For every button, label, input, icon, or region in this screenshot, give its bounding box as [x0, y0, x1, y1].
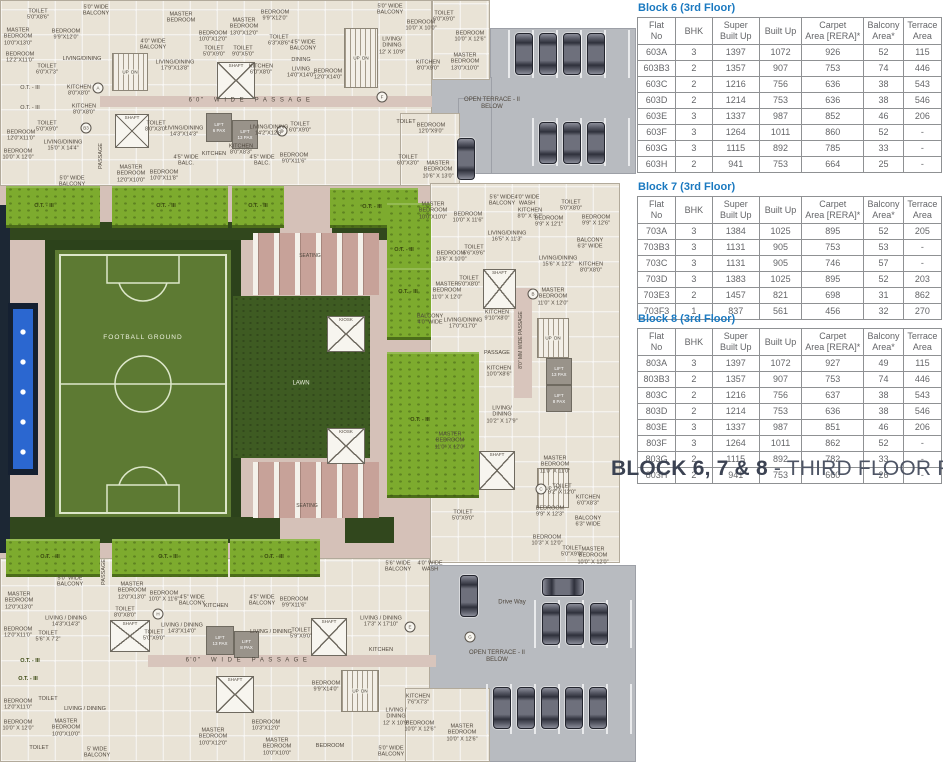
table-cell: 603E [638, 109, 676, 125]
shaft-box: SHAFT [115, 114, 149, 148]
table-cell: 636 [802, 77, 864, 93]
zone-green [387, 268, 431, 340]
table-cell: 1072 [759, 45, 802, 61]
table-cell: 546 [903, 404, 941, 420]
parked-car [563, 33, 581, 75]
table-cell: 1011 [759, 125, 802, 141]
table-cell: 38 [864, 77, 904, 93]
lift-box: LIFT 13 PAX [232, 120, 258, 149]
table-cell: 543 [903, 388, 941, 404]
table-cell: 603H [638, 157, 676, 173]
lift-box: LIFT 8 PAX [234, 631, 259, 658]
shaft-label: SHAFT [124, 115, 141, 120]
table-cell: 206 [903, 109, 941, 125]
block7-table: Block 7 (3rd Floor)Flat NoBHKSuper Built… [637, 181, 942, 320]
zone-flat [514, 288, 532, 398]
shaft-label: SHAFT [227, 677, 244, 682]
table-row: 603F31264101186052- [638, 125, 942, 141]
table-cell: 1264 [712, 125, 759, 141]
table-cell: 703B3 [638, 240, 676, 256]
table-cell: 603C [638, 77, 676, 93]
table-cell: 1131 [712, 256, 759, 272]
parked-car [515, 33, 533, 75]
table-cell: 53 [864, 240, 904, 256]
kiosk-box: KIOSK [327, 428, 365, 464]
table-cell: 446 [903, 372, 941, 388]
table-cell: 1214 [712, 93, 759, 109]
shaft-box: SHAFT [311, 618, 347, 656]
table-cell: 1264 [712, 436, 759, 452]
table-cell: 52 [864, 125, 904, 141]
table-cell: 52 [864, 224, 904, 240]
parked-car [587, 122, 605, 164]
table-cell: 1025 [759, 272, 802, 288]
table-cell: 52 [864, 436, 904, 452]
staircase: UP DN [112, 53, 148, 91]
shaft-label: SHAFT [489, 452, 506, 457]
table-cell: 860 [802, 125, 864, 141]
parked-car [457, 138, 475, 180]
zone-seat [253, 233, 379, 295]
table-heading: Block 8 (3rd Floor) [638, 313, 942, 325]
table-cell: 753 [802, 240, 864, 256]
column-header: Super Built Up [712, 18, 759, 45]
shaft-label: SHAFT [491, 270, 508, 275]
column-header: BHK [676, 18, 713, 45]
table-cell: 46 [864, 109, 904, 125]
unit-marker: A [93, 83, 104, 94]
table-cell: 753 [802, 372, 864, 388]
staircase: UP DN [341, 670, 379, 712]
shaft-box: SHAFT [110, 620, 150, 652]
table-cell: 703D [638, 272, 676, 288]
shaft-box: SHAFT [216, 676, 254, 713]
parked-car [517, 687, 535, 729]
zone-green [387, 352, 479, 498]
table-row: 603B32135790775374446 [638, 61, 942, 77]
shaft-box: SHAFT [483, 269, 516, 309]
table-cell: 987 [759, 420, 802, 436]
table-cell: 1457 [712, 288, 759, 304]
table-cell: 57 [864, 256, 904, 272]
lift-box: LIFT 13 PAX [546, 358, 572, 385]
table-cell: 803F [638, 436, 676, 452]
table-cell: 2 [676, 77, 713, 93]
table-cell: 1216 [712, 388, 759, 404]
table-cell: 543 [903, 77, 941, 93]
football-field-markings [55, 250, 231, 518]
table-cell: 3 [676, 141, 713, 157]
table-cell: 1383 [712, 272, 759, 288]
table-cell: 987 [759, 109, 802, 125]
parked-car [539, 122, 557, 164]
table-cell: 3 [676, 420, 713, 436]
table-row: 803D2121475363638546 [638, 404, 942, 420]
table-row: 803B32135790775374446 [638, 372, 942, 388]
table-cell: 31 [864, 288, 904, 304]
table-cell: 852 [802, 109, 864, 125]
lift-box: LIFT 8 PAX [546, 385, 572, 412]
table-cell: 603G [638, 141, 676, 157]
table-heading: Block 7 (3rd Floor) [638, 181, 942, 193]
table-cell: 746 [802, 256, 864, 272]
table-cell: - [903, 125, 941, 141]
shaft-box: SHAFT [217, 62, 255, 99]
table-cell: 756 [759, 77, 802, 93]
table-cell: 2 [676, 404, 713, 420]
zone-flat [345, 517, 394, 543]
table-cell: 46 [864, 420, 904, 436]
column-header: Carpet Area [RERA]* [802, 329, 864, 356]
table-cell: 753 [759, 404, 802, 420]
table-cell: 637 [802, 388, 864, 404]
table-row: 803A31397107292749115 [638, 356, 942, 372]
table-cell: 1397 [712, 356, 759, 372]
shaft-box: SHAFT [479, 451, 515, 490]
zone-field [55, 250, 231, 518]
table-cell: 895 [802, 272, 864, 288]
table-row: 703C3113190574657- [638, 256, 942, 272]
parked-car [493, 687, 511, 729]
flat-area-table: Flat NoBHKSuper Built UpBuilt UpCarpet A… [637, 196, 942, 320]
column-header: Terrace Area [903, 197, 941, 224]
table-heading: Block 6 (3rd Floor) [638, 2, 942, 14]
table-cell: 907 [759, 372, 802, 388]
parked-car [542, 578, 584, 596]
staircase: UP DN [344, 28, 378, 88]
table-cell: - [903, 141, 941, 157]
table-cell: 753 [802, 61, 864, 77]
column-header: Flat No [638, 329, 676, 356]
table-cell: 3 [676, 272, 713, 288]
table-cell: 203 [903, 272, 941, 288]
table-cell: 703C [638, 256, 676, 272]
column-header: Terrace Area [903, 329, 941, 356]
table-cell: 862 [903, 288, 941, 304]
table-cell: 851 [802, 420, 864, 436]
table-cell: 603D [638, 93, 676, 109]
zone-seat [253, 462, 379, 518]
table-cell: 52 [864, 272, 904, 288]
table-cell: - [903, 436, 941, 452]
table-cell: 3 [676, 125, 713, 141]
parked-car [542, 603, 560, 645]
table-cell: 926 [802, 45, 864, 61]
plan-title: BLOCK 6, 7 & 8 - THIRD FLOOR PLAN [611, 457, 943, 481]
column-header: Built Up [759, 197, 802, 224]
zone-green [230, 539, 320, 577]
shaft-label: SHAFT [321, 619, 338, 624]
table-cell: 803D [638, 404, 676, 420]
parked-car [589, 687, 607, 729]
table-cell: 664 [802, 157, 864, 173]
column-header: Balcony Area* [864, 18, 904, 45]
table-row: 603E3133798785246206 [638, 109, 942, 125]
table-cell: 927 [802, 356, 864, 372]
table-cell: 895 [802, 224, 864, 240]
table-cell: 636 [802, 93, 864, 109]
table-cell: 1131 [712, 240, 759, 256]
unit-marker: G [465, 632, 476, 643]
zone-room [405, 688, 490, 762]
stairs-label: UP DN [544, 336, 561, 341]
table-cell: 636 [802, 404, 864, 420]
table-cell: 905 [759, 256, 802, 272]
table-row: 803F31264101186252- [638, 436, 942, 452]
parked-car [565, 687, 583, 729]
unit-marker: E [405, 622, 416, 633]
unit-marker: B [528, 289, 539, 300]
table-cell: 52 [864, 45, 904, 61]
table-cell: 3 [676, 45, 713, 61]
table-cell: 756 [759, 388, 802, 404]
shaft-label: SHAFT [228, 63, 245, 68]
table-row: 603C2121675663638543 [638, 77, 942, 93]
lift-box: LIFT 6 PAX [206, 113, 232, 142]
table-cell: 3 [676, 256, 713, 272]
zone-pool [13, 309, 33, 469]
table-cell: 2 [676, 93, 713, 109]
table-cell: 2 [676, 61, 713, 77]
table-cell: 785 [802, 141, 864, 157]
column-header: Built Up [759, 329, 802, 356]
parked-car [539, 33, 557, 75]
lift-box: LIFT 13 PAX [206, 626, 234, 655]
column-header: Built Up [759, 18, 802, 45]
table-cell: 753 [759, 157, 802, 173]
table-cell: 3 [676, 224, 713, 240]
table-cell: 49 [864, 356, 904, 372]
kiosk-box: KIOSK [327, 316, 365, 352]
column-header: BHK [676, 329, 713, 356]
table-cell: 603F [638, 125, 676, 141]
table-cell: 1337 [712, 109, 759, 125]
table-cell: 703A [638, 224, 676, 240]
table-cell: 892 [759, 141, 802, 157]
plan-title-bold: BLOCK 6, 7 & 8 [611, 457, 768, 480]
table-cell: 862 [802, 436, 864, 452]
table-cell: 2 [676, 372, 713, 388]
table-row: 703D31383102589552203 [638, 272, 942, 288]
column-header: Super Built Up [712, 197, 759, 224]
table-cell: 753 [759, 93, 802, 109]
table-cell: 1337 [712, 420, 759, 436]
column-header: Terrace Area [903, 18, 941, 45]
table-row: 603H294175366425- [638, 157, 942, 173]
table-cell: 905 [759, 240, 802, 256]
table-cell: 1216 [712, 77, 759, 93]
zone-room [400, 113, 460, 186]
table-header-row: Flat NoBHKSuper Built UpBuilt UpCarpet A… [638, 18, 942, 45]
parked-car [460, 575, 478, 617]
table-cell: 38 [864, 93, 904, 109]
table-cell: 546 [903, 93, 941, 109]
parked-car [566, 603, 584, 645]
stairs-label: UP DN [121, 70, 138, 75]
table-cell: 3 [676, 109, 713, 125]
zone-flat [148, 655, 436, 667]
kiosk-label: KIOSK [338, 429, 354, 434]
column-header: Carpet Area [RERA]* [802, 197, 864, 224]
stairs-label: UP DN [351, 689, 368, 694]
table-cell: 115 [903, 356, 941, 372]
table-cell: 941 [712, 157, 759, 173]
table-cell: 703E3 [638, 288, 676, 304]
stairs-label: UP DN [352, 56, 369, 61]
parked-car [587, 33, 605, 75]
table-header-row: Flat NoBHKSuper Built UpBuilt UpCarpet A… [638, 197, 942, 224]
table-cell: 3 [676, 356, 713, 372]
column-header: Flat No [638, 197, 676, 224]
table-cell: 2 [676, 388, 713, 404]
unit-marker: D [277, 126, 288, 137]
table-row: 603D2121475363638546 [638, 93, 942, 109]
column-header: Carpet Area [RERA]* [802, 18, 864, 45]
table-cell: 205 [903, 224, 941, 240]
table-cell: 74 [864, 61, 904, 77]
table-cell: 33 [864, 141, 904, 157]
page: SHAFTSHAFTSHAFTSHAFTSHAFTSHAFTSHAFTKIOSK… [0, 0, 943, 768]
table-row: 803E3133798785146206 [638, 420, 942, 436]
plan-title-rest: - THIRD FLOOR PLAN [768, 457, 943, 480]
unit-marker: F [377, 92, 388, 103]
floor-plan: SHAFTSHAFTSHAFTSHAFTSHAFTSHAFTSHAFTKIOSK… [0, 0, 636, 768]
table-row: 603G3111589278533- [638, 141, 942, 157]
table-row: 703B33113190575353- [638, 240, 942, 256]
table-cell: 1397 [712, 45, 759, 61]
table-cell: 3 [676, 436, 713, 452]
table-header-row: Flat NoBHKSuper Built UpBuilt UpCarpet A… [638, 329, 942, 356]
zone-green [112, 186, 228, 228]
block6-table: Block 6 (3rd Floor)Flat NoBHKSuper Built… [637, 2, 942, 173]
table-row: 703A31384102589552205 [638, 224, 942, 240]
zone-green [112, 539, 228, 577]
table-cell: 1357 [712, 372, 759, 388]
table-row: 703E32145782169831862 [638, 288, 942, 304]
unit-marker: C [536, 484, 547, 495]
table-cell: 38 [864, 404, 904, 420]
column-header: BHK [676, 197, 713, 224]
table-row: 603A31397107292652115 [638, 45, 942, 61]
table-cell: 1214 [712, 404, 759, 420]
column-header: Super Built Up [712, 329, 759, 356]
column-header: Flat No [638, 18, 676, 45]
parked-car [541, 687, 559, 729]
shaft-label: SHAFT [122, 621, 139, 626]
zone-room [432, 0, 490, 80]
table-cell: 25 [864, 157, 904, 173]
table-cell: - [903, 240, 941, 256]
table-row: 803C2121675663738543 [638, 388, 942, 404]
staircase: UP DN [537, 318, 569, 358]
table-cell: 2 [676, 157, 713, 173]
table-cell: 1115 [712, 141, 759, 157]
stairs-label: UP DN [544, 486, 561, 491]
parked-car [590, 603, 608, 645]
table-cell: 603A [638, 45, 676, 61]
table-cell: - [903, 256, 941, 272]
table-cell: 821 [759, 288, 802, 304]
flat-area-table: Flat NoBHKSuper Built UpBuilt UpCarpet A… [637, 17, 942, 173]
table-cell: 1072 [759, 356, 802, 372]
table-cell: 74 [864, 372, 904, 388]
table-cell: 1011 [759, 436, 802, 452]
unit-marker: B3 [81, 123, 92, 134]
table-cell: 803E [638, 420, 676, 436]
zone-green [6, 186, 100, 228]
table-cell: - [903, 157, 941, 173]
kiosk-label: KIOSK [338, 317, 354, 322]
column-header: Balcony Area* [864, 329, 904, 356]
zone-green [232, 186, 284, 228]
table-cell: 1025 [759, 224, 802, 240]
table-cell: 38 [864, 388, 904, 404]
table-cell: 907 [759, 61, 802, 77]
table-cell: 2 [676, 288, 713, 304]
unit-marker: H [153, 609, 164, 620]
column-header: Balcony Area* [864, 197, 904, 224]
table-cell: 206 [903, 420, 941, 436]
table-cell: 698 [802, 288, 864, 304]
table-cell: 115 [903, 45, 941, 61]
table-cell: 1357 [712, 61, 759, 77]
table-cell: 3 [676, 240, 713, 256]
table-cell: 803A [638, 356, 676, 372]
zone-green [6, 539, 100, 577]
table-cell: 803B3 [638, 372, 676, 388]
table-cell: 803C [638, 388, 676, 404]
parked-car [563, 122, 581, 164]
table-cell: 603B3 [638, 61, 676, 77]
table-cell: 1384 [712, 224, 759, 240]
table-cell: 446 [903, 61, 941, 77]
